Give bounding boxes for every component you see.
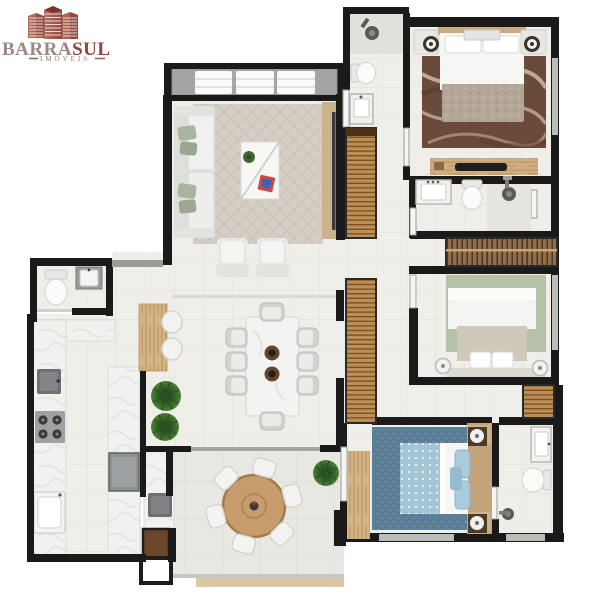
svg-text:IMÓVEIS: IMÓVEIS xyxy=(40,55,90,63)
